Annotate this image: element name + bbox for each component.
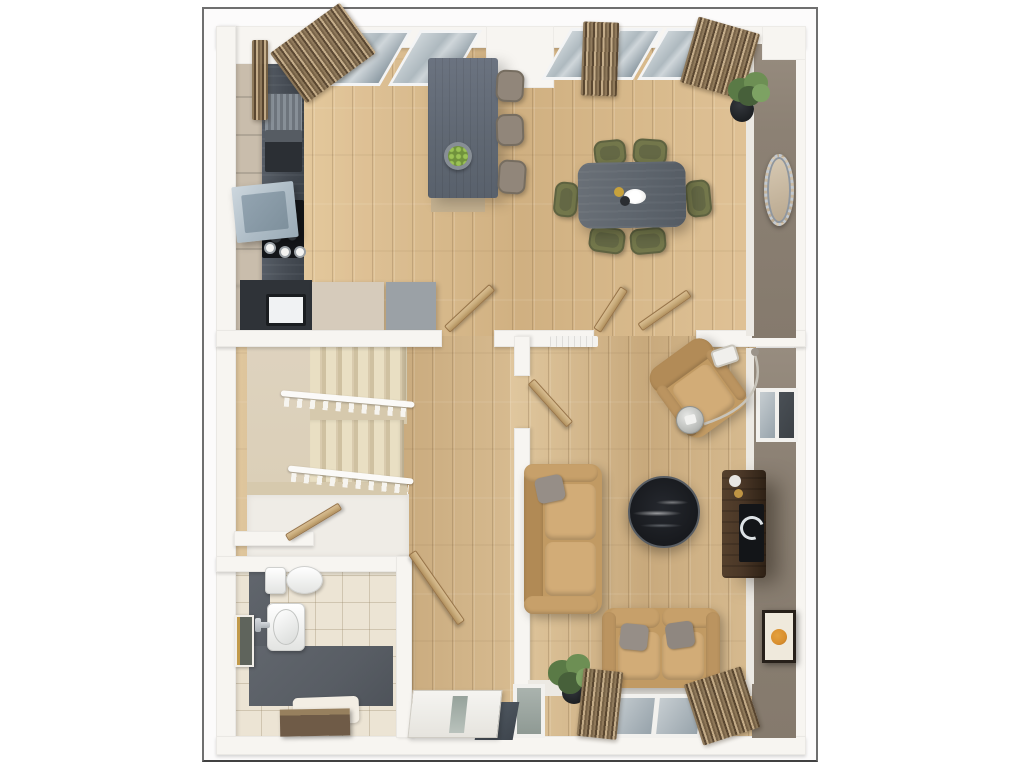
canister-icon xyxy=(264,242,276,254)
throw-pillow xyxy=(664,620,695,650)
bath-mat xyxy=(280,708,350,736)
curtain-living-left xyxy=(577,668,624,740)
media-console xyxy=(722,470,766,578)
decor-bowl-gold xyxy=(734,489,743,498)
understairs-cupboard-floor xyxy=(247,494,409,558)
extractor-hood-top xyxy=(241,191,289,233)
base-unit-tan xyxy=(312,282,384,332)
canister-icon xyxy=(294,246,306,258)
bar-stool xyxy=(497,159,527,195)
island-base xyxy=(431,196,485,212)
curtain-kitchen-left xyxy=(252,40,268,120)
hand-basin xyxy=(267,603,305,651)
middle-wall-left xyxy=(216,330,442,347)
dining-chair xyxy=(629,226,667,255)
wall-step-top-right xyxy=(762,26,806,60)
artwork-frame xyxy=(762,610,796,663)
hall-living-wall-upper xyxy=(514,336,530,376)
toilet-cistern xyxy=(265,567,286,594)
base-unit-gray xyxy=(386,282,436,332)
cup xyxy=(620,196,630,206)
coffee-machine xyxy=(265,130,302,172)
toilet-bowl xyxy=(286,566,323,594)
radiator xyxy=(550,336,598,347)
side-table-item xyxy=(684,414,697,426)
front-door xyxy=(407,690,502,738)
coffee-table xyxy=(628,476,700,548)
fruit-bowl xyxy=(444,142,472,170)
three-seat-sofa xyxy=(524,464,602,614)
oven-appliance xyxy=(266,294,306,326)
pot-plant-dining xyxy=(718,70,772,124)
cloakroom-wall-frame xyxy=(235,615,254,667)
canister-icon xyxy=(279,246,291,258)
side-table xyxy=(676,406,704,434)
dining-chair xyxy=(552,181,580,218)
decor-bowl-white xyxy=(729,475,741,487)
exterior-wall-left xyxy=(216,26,236,738)
bar-stool xyxy=(495,114,524,147)
dining-chair xyxy=(587,225,626,256)
bar-stool xyxy=(495,69,525,102)
oval-mirror xyxy=(764,154,794,226)
curtain-dining-center xyxy=(581,21,620,96)
dish-rack xyxy=(265,94,302,134)
dining-chair xyxy=(684,179,713,218)
side-light-window xyxy=(513,684,545,738)
floor-plan-image xyxy=(0,0,1024,768)
tap-handle-icon xyxy=(255,618,261,632)
throw-pillow xyxy=(619,623,650,652)
kitchen-island xyxy=(428,58,498,198)
